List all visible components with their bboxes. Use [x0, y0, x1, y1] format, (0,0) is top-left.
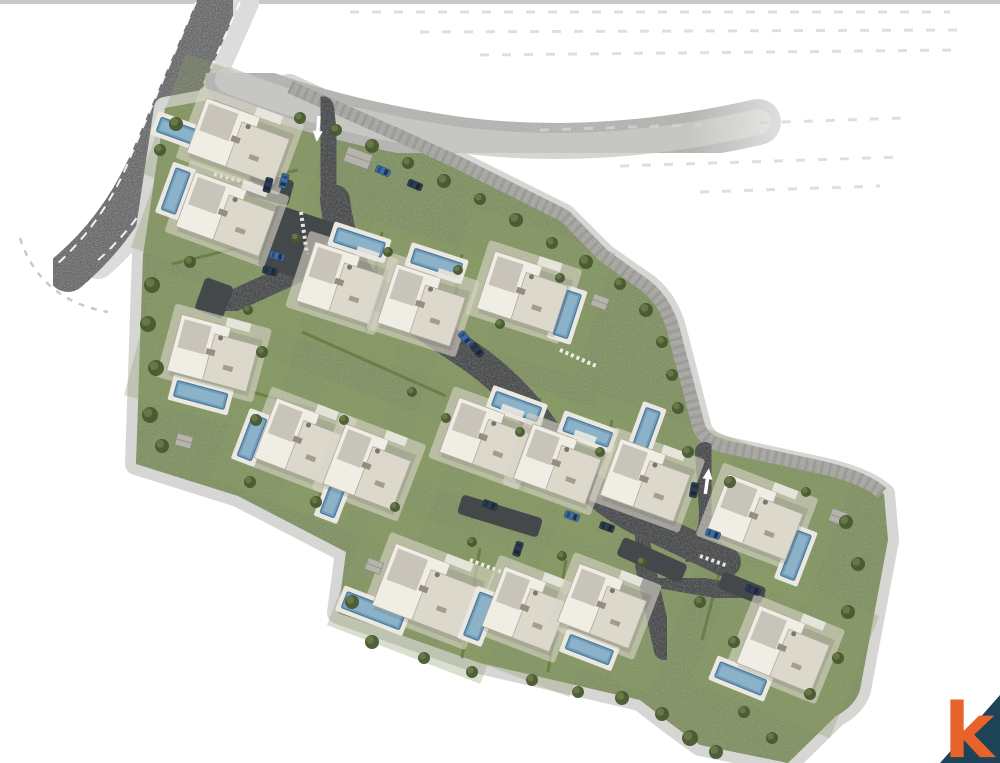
tree-highlight [292, 234, 298, 240]
tree [851, 557, 865, 571]
tree-highlight [185, 257, 192, 264]
tree-highlight [640, 304, 648, 312]
tree-highlight [556, 274, 562, 280]
tree [801, 487, 811, 497]
tree [142, 407, 158, 423]
tree [555, 273, 565, 283]
tree-highlight [573, 687, 580, 694]
tree [509, 213, 523, 227]
tree-highlight [403, 158, 410, 165]
tree [655, 707, 669, 721]
tree [365, 139, 379, 153]
tree-highlight [767, 733, 774, 740]
tree [728, 636, 740, 648]
tree [639, 303, 653, 317]
tree [804, 688, 816, 700]
tree-highlight [150, 361, 159, 370]
tree [310, 496, 322, 508]
tree-highlight [475, 194, 482, 201]
tree-highlight [366, 636, 374, 644]
tree-highlight [251, 415, 258, 422]
tree-highlight [840, 516, 848, 524]
tree-highlight [295, 113, 302, 120]
tree [666, 369, 678, 381]
tree [579, 255, 593, 269]
arrow-stem [318, 116, 319, 132]
tree [466, 666, 478, 678]
tree-highlight [739, 707, 746, 714]
tree [766, 732, 778, 744]
tree [244, 476, 256, 488]
tree [437, 174, 451, 188]
tree-highlight [311, 497, 318, 504]
tree-highlight [510, 214, 518, 222]
tree [467, 537, 477, 547]
tree [441, 413, 451, 423]
tree-highlight [667, 370, 674, 377]
tree [546, 237, 558, 249]
tree [682, 446, 694, 458]
logo-letter: k [944, 686, 996, 763]
tree [365, 635, 379, 649]
tree-highlight [580, 256, 588, 264]
tree [148, 360, 164, 376]
tree-highlight [408, 388, 414, 394]
tree-highlight [384, 248, 390, 254]
tree-highlight [467, 667, 474, 674]
tree-highlight [729, 637, 736, 644]
tree-highlight [833, 653, 840, 660]
tree [515, 427, 525, 437]
tree [495, 319, 505, 329]
tree-highlight [725, 477, 732, 484]
tree [383, 247, 393, 257]
tree [407, 387, 417, 397]
tree-highlight [331, 125, 338, 132]
tree-highlight [710, 746, 718, 754]
tree-highlight [656, 708, 664, 716]
tree [243, 305, 253, 315]
tree-highlight [673, 403, 680, 410]
track-fade [690, 58, 850, 188]
tree [345, 595, 359, 609]
tree-highlight [245, 477, 252, 484]
tree-highlight [805, 689, 812, 696]
tree-highlight [144, 408, 153, 417]
tree-highlight [170, 118, 178, 126]
tree [614, 278, 626, 290]
tree [390, 502, 400, 512]
tree-highlight [468, 538, 474, 544]
tree-highlight [346, 596, 354, 604]
tree [682, 730, 698, 746]
tree [402, 157, 414, 169]
tree-highlight [615, 279, 622, 286]
tree [291, 233, 301, 243]
tree-highlight [802, 488, 808, 494]
tree [694, 596, 706, 608]
tree-highlight [442, 414, 448, 420]
tree [595, 447, 605, 457]
tree-highlight [638, 558, 644, 564]
tree [474, 193, 486, 205]
tree [615, 691, 629, 705]
tree [330, 124, 342, 136]
tree [572, 686, 584, 698]
top-edge-strip [0, 0, 1000, 4]
tree-highlight [683, 447, 690, 454]
tree [169, 117, 183, 131]
tree [418, 652, 430, 664]
tree [839, 515, 853, 529]
tree [256, 346, 268, 358]
tree-highlight [616, 692, 624, 700]
tree-highlight [516, 428, 522, 434]
tree-highlight [155, 145, 162, 152]
tree [294, 112, 306, 124]
tree-highlight [146, 278, 155, 287]
tree-highlight [244, 306, 250, 312]
tree-highlight [366, 140, 374, 148]
tree-highlight [657, 337, 664, 344]
tree [637, 557, 647, 567]
tree [154, 144, 166, 156]
tree [738, 706, 750, 718]
tree [453, 265, 463, 275]
tree [140, 316, 156, 332]
tree-highlight [257, 347, 264, 354]
tree [144, 277, 160, 293]
tree [841, 605, 855, 619]
tree-highlight [684, 731, 693, 740]
tree-highlight [527, 675, 534, 682]
tree-highlight [852, 558, 860, 566]
arrow-stem [705, 478, 707, 494]
tree [250, 414, 262, 426]
tree-highlight [596, 448, 602, 454]
tree [184, 256, 196, 268]
tree [339, 415, 349, 425]
tree-highlight [558, 552, 564, 558]
tree-highlight [340, 416, 346, 422]
tree-highlight [695, 597, 702, 604]
tree [709, 745, 723, 759]
tree [724, 476, 736, 488]
tree-highlight [142, 317, 151, 326]
tree-highlight [419, 653, 426, 660]
tree-highlight [156, 440, 164, 448]
brand-logo: k [940, 686, 1000, 763]
tree-highlight [547, 238, 554, 245]
tree-highlight [391, 503, 397, 509]
tree-highlight [842, 606, 850, 614]
site-plan: k [0, 0, 1000, 763]
tree-highlight [438, 175, 446, 183]
tree-highlight [454, 266, 460, 272]
tree [832, 652, 844, 664]
tree [557, 551, 567, 561]
tree [672, 402, 684, 414]
tree [155, 439, 169, 453]
tree [656, 336, 668, 348]
tree-highlight [496, 320, 502, 326]
tree [526, 674, 538, 686]
screenshot-canvas: k [0, 0, 1000, 763]
